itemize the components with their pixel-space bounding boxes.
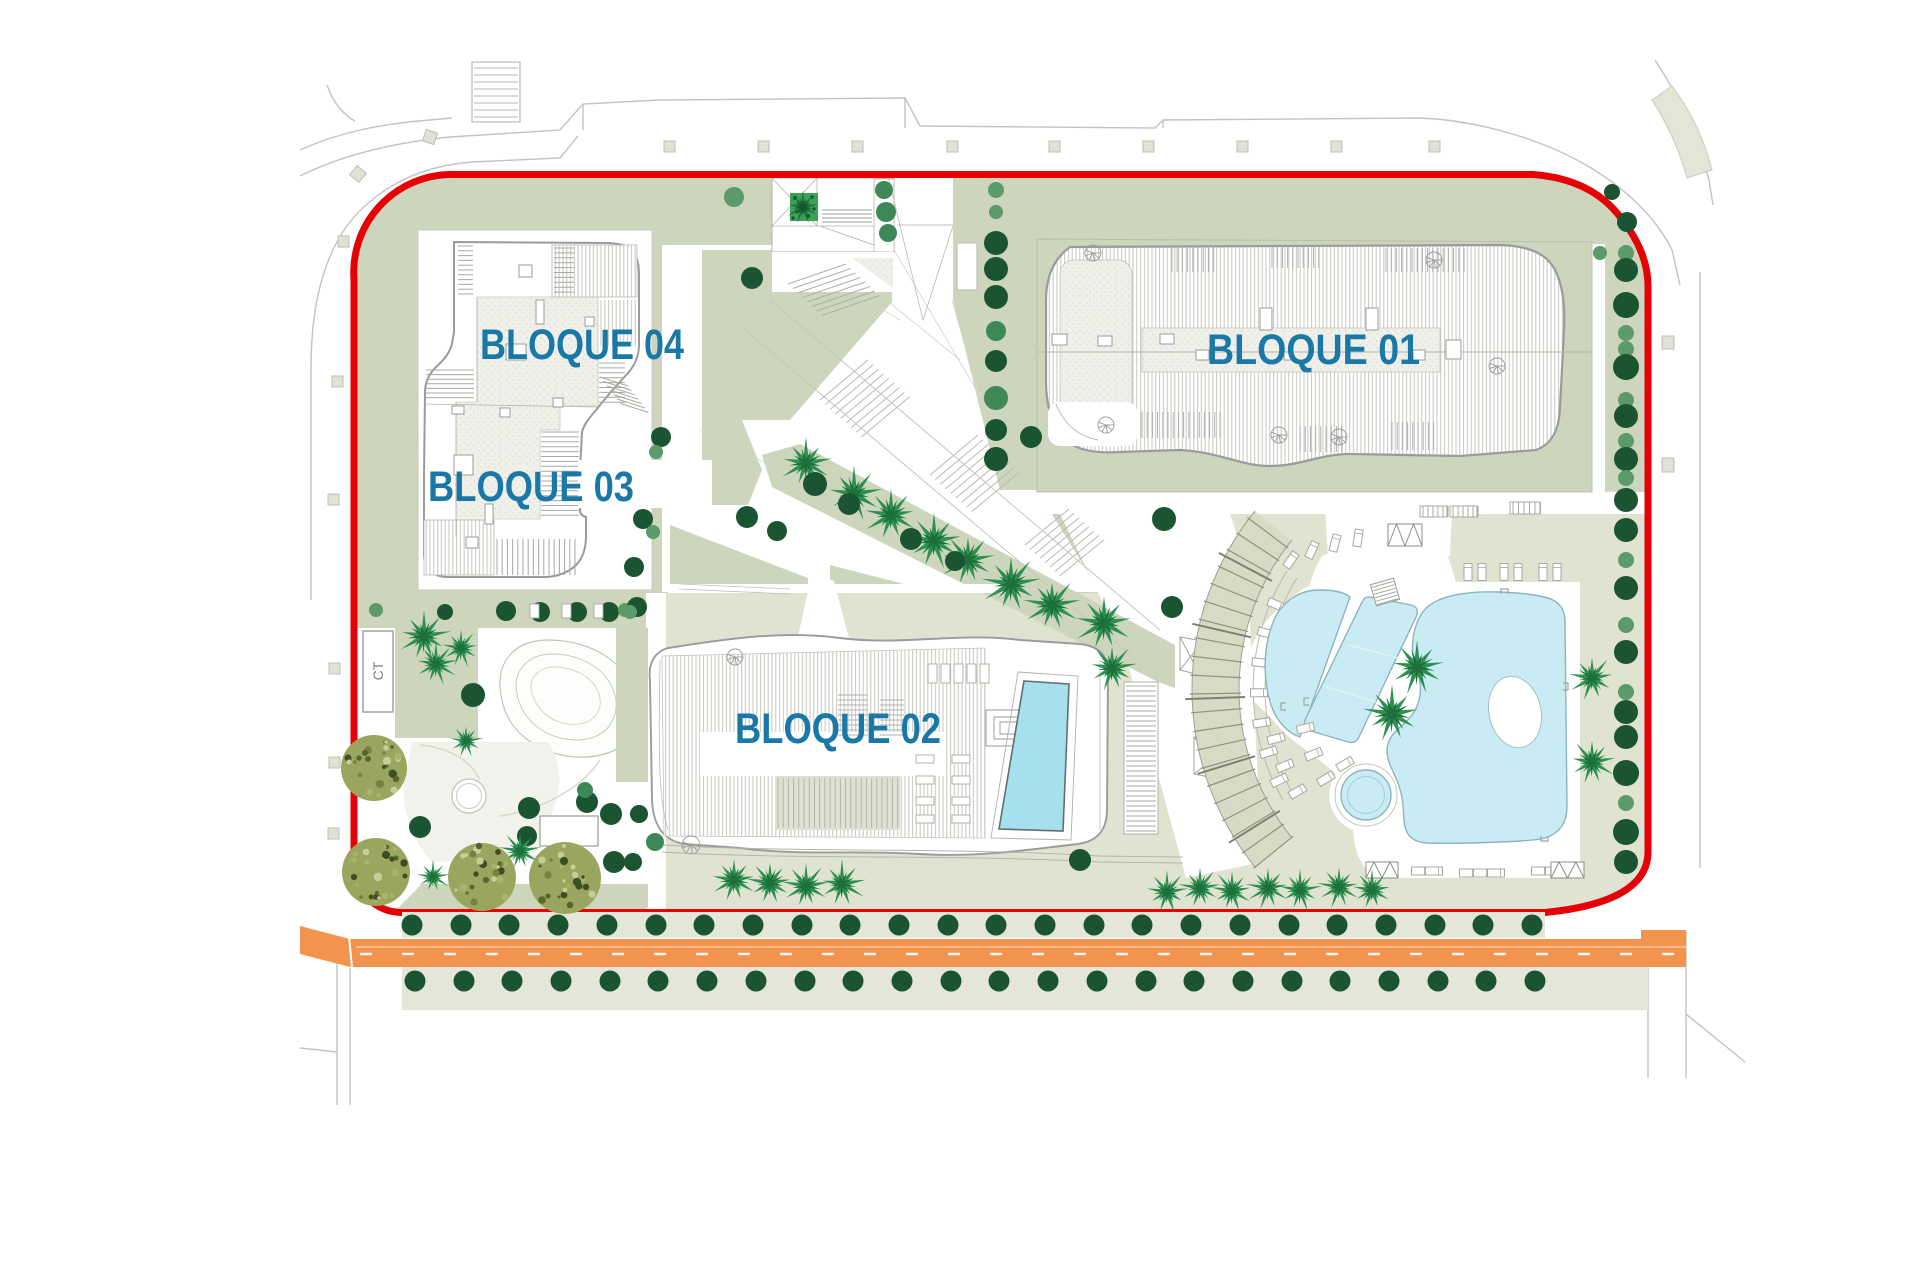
svg-text:BLOQUE 03: BLOQUE 03 — [428, 463, 634, 511]
svg-text:BLOQUE 02: BLOQUE 02 — [735, 705, 941, 753]
svg-text:BLOQUE 01: BLOQUE 01 — [1207, 326, 1420, 374]
svg-text:CT: CT — [370, 661, 386, 680]
svg-text:BLOQUE 04: BLOQUE 04 — [480, 321, 684, 369]
